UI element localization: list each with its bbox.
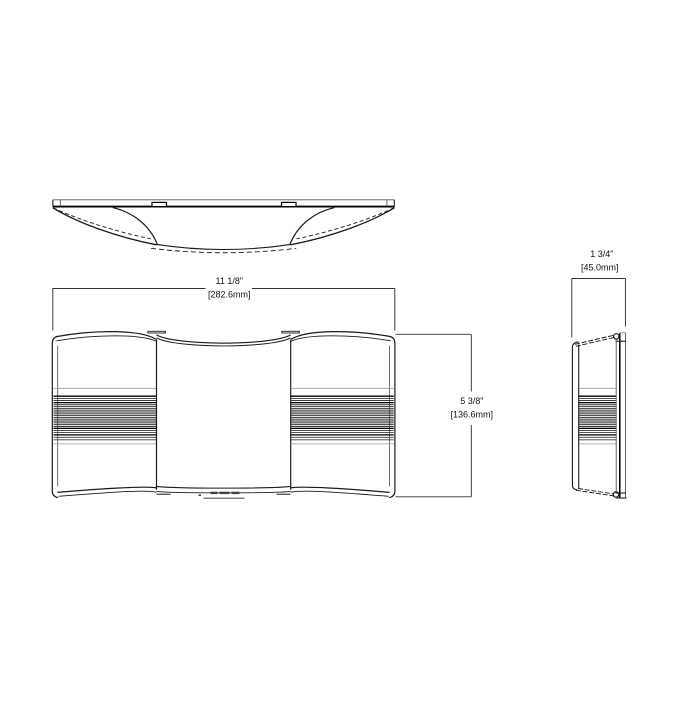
- svg-text:1 3/4": 1 3/4": [590, 249, 613, 259]
- svg-text:[136.6mm]: [136.6mm]: [451, 409, 494, 419]
- svg-text:[282.6mm]: [282.6mm]: [208, 290, 251, 300]
- svg-text:11 1/8": 11 1/8": [216, 276, 244, 286]
- svg-text:[45.0mm]: [45.0mm]: [581, 262, 619, 272]
- svg-text:5 3/8": 5 3/8": [460, 396, 483, 406]
